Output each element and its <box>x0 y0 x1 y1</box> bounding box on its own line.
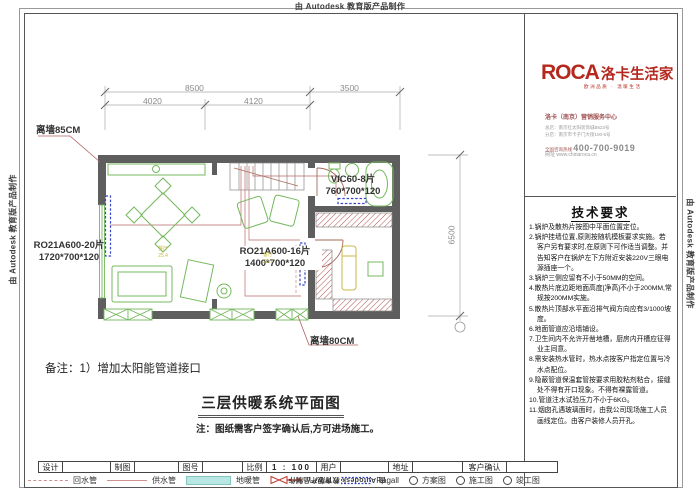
room-label-dining: 餐厅 25.4 <box>150 246 176 259</box>
construction-drawing-label: 施工图 <box>469 475 493 486</box>
room-label-living: 客厅 23.7 <box>255 252 281 265</box>
roca-logo: ROCA 洛卡生活家 <box>541 62 675 83</box>
tech-item: 4.散热片底边距地面高度[净高]不小于200MM,常规按200MM实施。 <box>529 284 672 304</box>
label-radiator-vic60-model: VIC60-8片 <box>308 174 398 186</box>
field-draft-value <box>134 461 178 473</box>
floor-heating-pipe-label: 地暖管 <box>236 475 260 486</box>
dim-3500: 3500 <box>340 83 359 93</box>
tech-item: 6.地面管道应沿墙铺设。 <box>529 325 672 335</box>
return-pipe-label: 回水管 <box>73 475 97 486</box>
tech-item: 1.锅炉及散热片按图中平面位置定位。 <box>529 223 672 233</box>
autodesk-watermark-right: 由 Autodesk 教育版产品制作 <box>685 189 696 319</box>
scheme-drawing-circle <box>409 476 418 485</box>
roca-website: 网址 www.chinaroca.cn <box>545 151 597 158</box>
field-design-label: 设计 <box>38 461 62 473</box>
tech-item: 10.管道注水试验压力不小于6KG。 <box>529 396 672 406</box>
field-design-value <box>62 461 110 473</box>
remark-text: 备注：1）增加太阳能管道接口 <box>45 360 201 376</box>
technical-requirements-list: 1.锅炉及散热片按图中平面位置定位。 2.锅炉挂墙位置,原则按随机模板要求实施。… <box>529 223 672 427</box>
roca-tagline: 欧洲品质 · 温暖生活 <box>584 84 642 90</box>
dim-6500: 6500 <box>446 226 456 245</box>
label-radiator-20: RO21A600-20片 1720*700*120 <box>24 240 114 264</box>
field-drawing-no-label: 图号 <box>178 461 202 473</box>
return-pipe-symbol <box>28 480 68 481</box>
title-block: 设计 制图 图号 比例 1 : 100 用户 地址 客户确认 <box>38 461 558 473</box>
tech-item: 7.卫生间内不允许开凿地槽，厨房内开槽应征得业主同意。 <box>529 335 672 355</box>
roca-address: 总店：南京红太阳装饰城B623号 分店：南京市卡子门大街100-5号 <box>545 124 611 138</box>
field-address-label: 地址 <box>388 461 412 473</box>
supply-pipe-label: 供水管 <box>152 475 176 486</box>
room-label-dining-area: 25.4 <box>150 253 176 260</box>
roca-logo-cn: 洛卡生活家 <box>601 68 674 83</box>
drawing-sheet: 由 Autodesk 教育版产品制作 由 Autodesk 教育版产品制作 由 … <box>0 0 700 490</box>
label-wall-offset-80: 离墙80CM <box>310 336 354 348</box>
label-wall-offset-85: 离墙85CM <box>36 125 80 137</box>
field-drawing-no-value <box>202 461 242 473</box>
autodesk-watermark-top: 由 Autodesk 教育版产品制作 <box>0 1 700 12</box>
supply-pipe-symbol <box>107 480 147 481</box>
completion-drawing-label: 竣工图 <box>516 475 540 486</box>
technical-requirements-panel: 技术要求 1.锅炉及散热片按图中平面位置定位。 2.锅炉挂墙位置,原则按随机模板… <box>525 197 676 485</box>
dim-4120: 4120 <box>244 96 263 106</box>
field-user-label: 用户 <box>316 461 340 473</box>
scheme-drawing-label: 方案图 <box>422 475 446 486</box>
label-radiator-20-model: RO21A600-20片 <box>24 240 114 252</box>
label-radiator-vic60: VIC60-8片 760*700*120 <box>308 174 398 198</box>
field-scale-label: 比例 <box>242 461 266 473</box>
tech-item: 5.散热片顶部水平面沿排气阀方向应有3/1000坡度。 <box>529 305 672 325</box>
tech-item: 9.隐蔽管道保温套管按要求用胶粘剂粘合，接缝处不得有开口现象。不得有裸露管道。 <box>529 376 672 396</box>
dim-8500: 8500 <box>185 83 204 93</box>
field-customer-confirm-label: 客户确认 <box>462 461 506 473</box>
roca-logo-en: ROCA <box>541 62 599 83</box>
field-scale-value: 1 : 100 <box>266 461 316 473</box>
room-label-living-area: 23.7 <box>255 259 281 266</box>
autodesk-watermark-left: 由 Autodesk 教育版产品制作 <box>8 165 19 295</box>
construction-drawing-circle <box>456 476 465 485</box>
field-draft-label: 制图 <box>110 461 134 473</box>
completion-drawing-circle <box>503 476 512 485</box>
technical-requirements-title-text: 技术要求 <box>571 206 629 222</box>
field-address-value <box>412 461 462 473</box>
drawing-note: 注：图纸需客户签字确认后,方可进场施工。 <box>196 421 379 435</box>
label-radiator-20-size: 1720*700*120 <box>24 252 114 264</box>
autodesk-watermark-bottom: 由 Autodesk 教育版产品制作 <box>281 475 393 485</box>
floor-heating-pipe-symbol <box>186 476 231 485</box>
dim-4020: 4020 <box>143 96 162 106</box>
tech-item: 11.烟囱孔遇玻璃面时，由我公司现场施工人员画线定位。由客户装修人员开孔。 <box>529 406 672 426</box>
label-radiator-vic60-size: 760*700*120 <box>308 186 398 198</box>
tech-item: 3.锅炉三侧应留有不小于50MM的空间。 <box>529 274 672 284</box>
roca-service-center: 洛卡（南京）营销服务中心 <box>545 112 617 121</box>
tech-item: 8.需安装热水管时，热水点按客户指定位置与冷水点配位。 <box>529 355 672 375</box>
drawing-title: 三层供暖系统平面图 <box>198 392 344 418</box>
tech-item: 2.锅炉挂墙位置,原则按随机模板要求实施。若客户另有要求时,在原则下可作适当调整… <box>529 233 672 274</box>
technical-requirements-title: 技术要求 <box>525 202 676 222</box>
field-customer-confirm-value <box>506 461 558 473</box>
field-user-value <box>340 461 388 473</box>
roca-address-line1: 总店：南京红太阳装饰城B623号 <box>545 124 611 131</box>
